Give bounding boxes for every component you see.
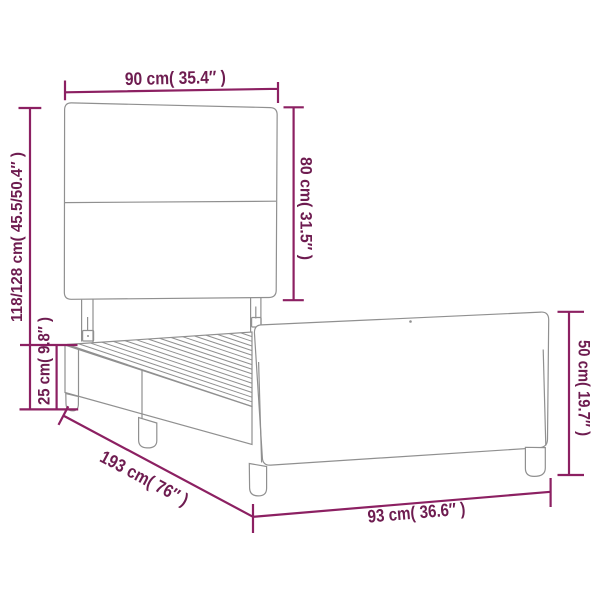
dim-headboard-width: 90 cm( 35.4″ ): [65, 67, 278, 103]
footboard-button: [409, 320, 412, 323]
headboard-post-left: [82, 299, 94, 343]
dim-label-total-height: 118/128 cm( 45.5/50.4″ ): [9, 152, 26, 322]
post-screw-icon: [86, 314, 90, 318]
footboard-panel: [254, 312, 548, 465]
dim-label-headboard-height: 80 cm( 31.5″ ): [297, 157, 316, 260]
dim-label-length: 193 cm( 76″ ): [97, 447, 192, 510]
dimension-diagram: 90 cm( 35.4″ ) 80 cm( 31.5″ ) 118/128 cm…: [0, 0, 600, 600]
dim-label-footboard-width: 93 cm( 36.6″ ): [367, 498, 466, 526]
diagram-canvas: 90 cm( 35.4″ ) 80 cm( 31.5″ ) 118/128 cm…: [0, 0, 600, 600]
post-screw-icon: [254, 303, 258, 307]
leg-footboard-left: [249, 464, 266, 496]
leg-footboard-right: [525, 447, 545, 476]
leg-middle: [139, 418, 157, 448]
dim-label-base-height: 25 cm( 9.8″ ): [36, 317, 54, 405]
dim-headboard-height: 80 cm( 31.5″ ): [283, 107, 316, 300]
dim-footboard-height: 50 cm( 19.7″ ): [558, 312, 594, 475]
dim-label-footboard-height: 50 cm( 19.7″ ): [575, 340, 594, 436]
dim-footboard-width: 93 cm( 36.6″ ): [253, 478, 551, 527]
dim-label-headboard-width: 90 cm( 35.4″ ): [125, 67, 226, 89]
